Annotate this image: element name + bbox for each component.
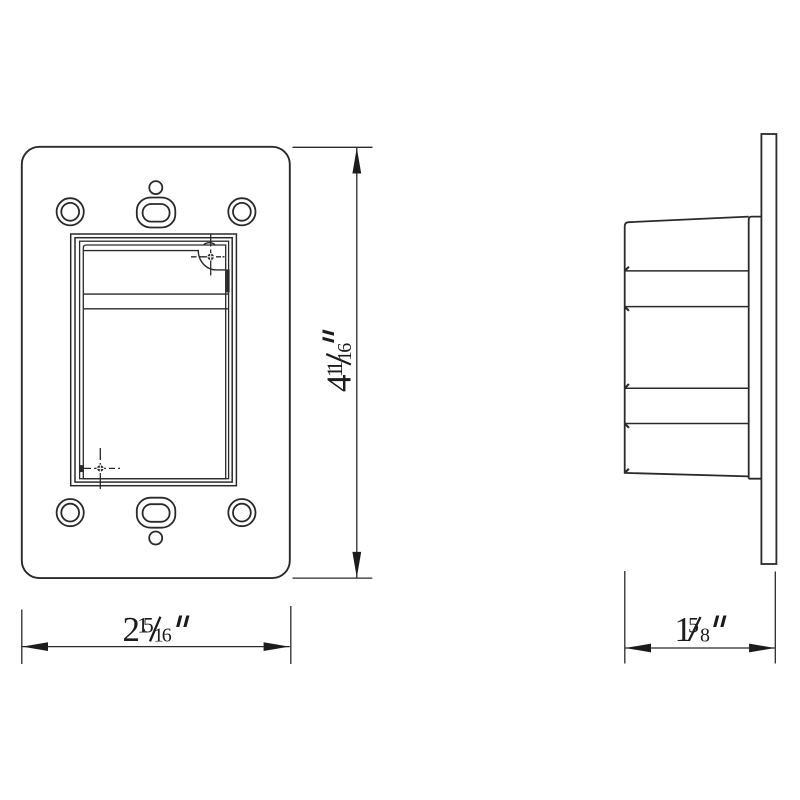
svg-text:8: 8 bbox=[700, 624, 710, 646]
svg-text:6: 6 bbox=[334, 343, 356, 353]
svg-text:6: 6 bbox=[162, 624, 172, 646]
